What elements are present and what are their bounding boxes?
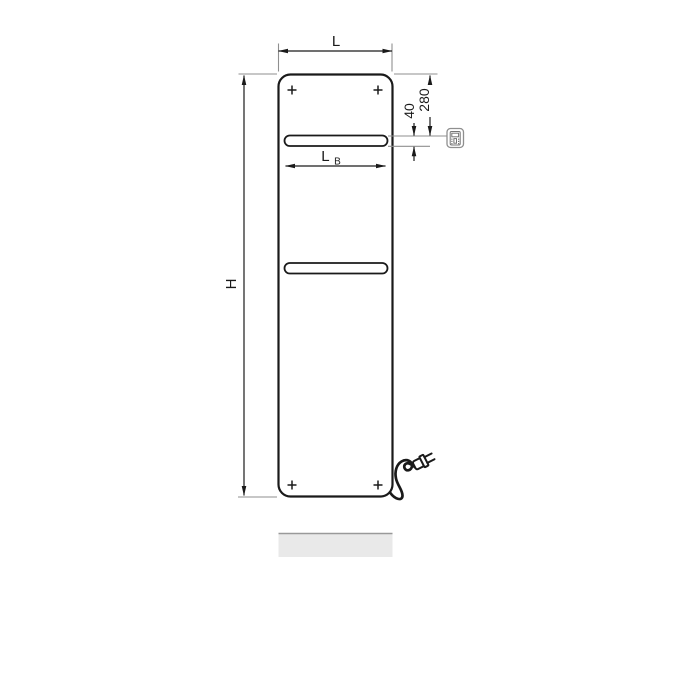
cross-mark-top-left (288, 86, 297, 95)
power-plug-icon (412, 451, 436, 471)
dimension-top-offset: 280 (416, 76, 432, 136)
dimension-rail-width-label: L B (321, 148, 341, 168)
dimension-width-label: L (332, 33, 340, 50)
radiator-panel (279, 75, 393, 497)
power-cable (390, 451, 436, 499)
dimension-rail-thickness: 40 (401, 103, 417, 161)
dimension-height-label: H (223, 279, 240, 290)
cross-mark-bottom-right (374, 481, 383, 490)
cable-curve (390, 460, 416, 499)
control-unit-icon (447, 129, 464, 148)
dimension-rail-thickness-label: 40 (401, 103, 417, 119)
dimension-width: L (279, 33, 393, 51)
cross-mark-top-right (374, 86, 383, 95)
cross-mark-bottom-left (288, 481, 297, 490)
dimension-height: H (223, 76, 244, 496)
floor-shadow (279, 534, 393, 558)
radiator-dimension-diagram: L H 280 40 L B (0, 0, 700, 700)
dimension-rail-width: L B (286, 148, 386, 168)
towel-rail-upper (285, 136, 388, 147)
dimension-top-offset-label: 280 (416, 88, 432, 112)
towel-rail-lower (285, 263, 388, 274)
